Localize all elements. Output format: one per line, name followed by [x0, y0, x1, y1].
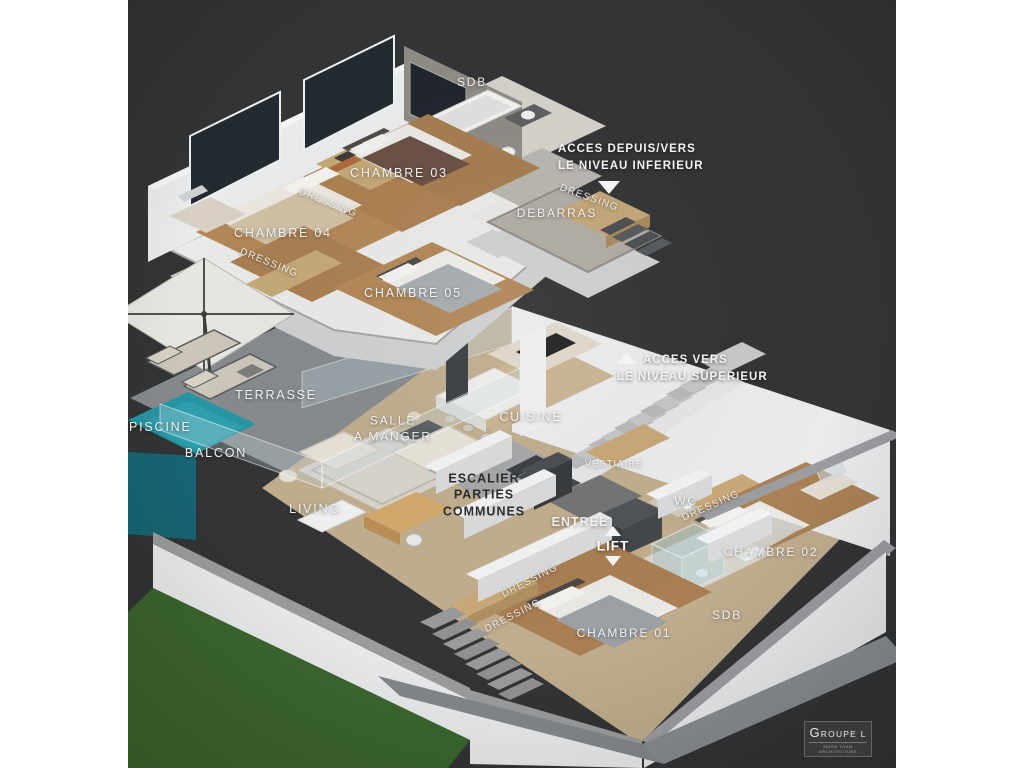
label-line: SALLE	[354, 413, 432, 429]
room-label-living: LIVING	[289, 502, 341, 516]
annotation-line: ACCES VERS	[617, 352, 768, 369]
logo-name: GROUPE L	[805, 726, 871, 740]
lift-label: LIFT	[597, 539, 630, 554]
vignette-overlay	[128, 0, 896, 768]
label-line: A MANGER	[354, 429, 432, 445]
room-label-chambre-02: CHAMBRE 02	[724, 545, 819, 559]
annotation-text: ACCES VERS	[643, 354, 728, 366]
annotation-acces-inferieur: ACCES DEPUIS/VERS LE NIVEAU INFERIEUR	[558, 141, 704, 174]
annotation-acces-superieur: ACCES VERS LE NIVEAU SUPERIEUR	[617, 352, 768, 385]
room-label-sdb-lower: SDB	[712, 608, 742, 622]
label-line: COMMUNES	[443, 503, 525, 519]
room-label-vestiaire: VESTIAIRE	[585, 459, 644, 470]
room-label-cuisine: CUISINE	[499, 410, 562, 424]
annotation-line: LE NIVEAU INFERIEUR	[558, 158, 704, 175]
down-arrow-icon	[598, 181, 620, 194]
isometric-scene	[0, 0, 1024, 768]
room-label-chambre-01: CHAMBRE 01	[577, 626, 672, 640]
room-label-entree: ENTREE	[552, 515, 609, 529]
room-label-salle-a-manger: SALLE A MANGER	[354, 413, 432, 444]
lift-up-arrow-icon	[605, 526, 621, 536]
label-line: PARTIES	[443, 487, 525, 503]
room-label-terrasse: TERRASSE	[235, 388, 317, 402]
annotation-line: LE NIVEAU SUPERIEUR	[617, 369, 768, 386]
room-label-piscine: PISCINE	[129, 420, 192, 434]
room-label-chambre-03: CHAMBRE 03	[350, 166, 448, 180]
floor-plan-rendering: SDB CHAMBRE 03 DRESSING CHAMBRE 04 DRESS…	[0, 0, 1024, 768]
annotation-line: ACCES DEPUIS/VERS	[558, 141, 704, 158]
room-label-wc: WC	[674, 494, 698, 508]
room-label-sdb-upper: SDB	[457, 75, 487, 89]
room-label-escalier-communes: ESCALIER PARTIES COMMUNES	[443, 471, 525, 520]
groupe-l-logo: GROUPE L MORE THAN ARCHITECTURE	[804, 721, 872, 757]
room-label-chambre-05: CHAMBRE 05	[364, 286, 462, 300]
logo-tagline: MORE THAN ARCHITECTURE	[805, 744, 871, 754]
room-label-chambre-04: CHAMBRE 04	[234, 226, 332, 240]
logo-divider	[809, 742, 867, 743]
room-label-balcon: BALCON	[185, 446, 247, 460]
lift-down-arrow-icon	[605, 556, 621, 566]
room-label-debarras: DEBARRAS	[517, 206, 597, 220]
label-line: ESCALIER	[443, 471, 525, 487]
up-arrow-icon	[617, 352, 637, 364]
